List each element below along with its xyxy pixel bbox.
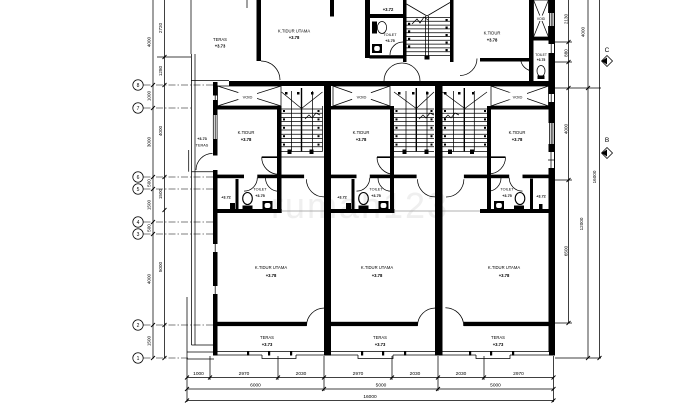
svg-text:TERAS: TERAS <box>213 37 227 42</box>
svg-text:6000: 6000 <box>250 383 261 389</box>
svg-text:4000: 4000 <box>147 36 152 47</box>
svg-text:VOID: VOID <box>243 95 253 100</box>
svg-text:+3.73: +3.73 <box>375 342 386 347</box>
svg-text:5000: 5000 <box>376 383 387 389</box>
svg-text:5: 5 <box>137 187 140 193</box>
svg-text:+3.75: +3.75 <box>385 39 395 43</box>
svg-text:TERAS: TERAS <box>373 335 387 340</box>
svg-text:+3.75: +3.75 <box>502 194 512 198</box>
svg-text:K.TIDUR UTAMA: K.TIDUR UTAMA <box>488 265 520 270</box>
svg-text:K.TIDUR UTAMA: K.TIDUR UTAMA <box>278 29 310 34</box>
svg-text:+3.78: +3.78 <box>372 273 383 278</box>
svg-text:+3.78: +3.78 <box>356 137 367 142</box>
svg-text:1500: 1500 <box>147 199 152 210</box>
svg-text:K.TIDUR: K.TIDUR <box>509 130 526 135</box>
svg-text:+3.75: +3.75 <box>371 194 381 198</box>
svg-text:VOID: VOID <box>357 95 367 100</box>
svg-text:2030: 2030 <box>456 371 467 377</box>
svg-text:+3.72: +3.72 <box>337 196 347 200</box>
svg-text:K.TIDUR: K.TIDUR <box>484 31 501 36</box>
svg-text:TOILET: TOILET <box>500 188 514 192</box>
svg-text:+3.78: +3.78 <box>289 35 300 40</box>
svg-text:16000: 16000 <box>592 170 597 183</box>
svg-text:3000: 3000 <box>147 136 152 147</box>
svg-text:TOILET: TOILET <box>535 53 547 57</box>
svg-text:12000: 12000 <box>579 217 584 230</box>
svg-text:16000: 16000 <box>363 394 377 400</box>
svg-text:+3.73: +3.73 <box>215 44 226 49</box>
svg-text:2970: 2970 <box>513 371 524 377</box>
svg-text:TERAS: TERAS <box>260 335 274 340</box>
svg-text:+3.78: +3.78 <box>266 273 277 278</box>
svg-text:TERAS: TERAS <box>491 335 505 340</box>
svg-text:+3.78: +3.78 <box>241 137 252 142</box>
svg-text:7: 7 <box>137 106 140 112</box>
svg-text:500: 500 <box>147 179 152 187</box>
svg-text:4000: 4000 <box>158 125 163 136</box>
svg-text:TOILET: TOILET <box>253 188 267 192</box>
svg-text:TOILET: TOILET <box>383 33 397 37</box>
svg-text:+3.73: +3.73 <box>262 342 273 347</box>
svg-text:2130: 2130 <box>564 13 569 24</box>
svg-text:+3.78: +3.78 <box>499 273 510 278</box>
svg-text:1500: 1500 <box>158 188 163 199</box>
svg-text:K.TIDUR UTAMA: K.TIDUR UTAMA <box>255 265 287 270</box>
svg-text:TOILET: TOILET <box>369 188 383 192</box>
svg-text:TERAS: TERAS <box>196 144 209 148</box>
svg-text:5000: 5000 <box>158 261 163 272</box>
svg-text:VOID: VOID <box>513 95 523 100</box>
svg-text:+3.73: +3.73 <box>493 342 504 347</box>
svg-text:4000: 4000 <box>564 123 569 134</box>
svg-text:B: B <box>605 137 609 144</box>
svg-text:5000: 5000 <box>490 383 501 389</box>
svg-text:+3.73: +3.73 <box>197 137 207 141</box>
svg-text:+3.78: +3.78 <box>487 38 498 43</box>
svg-text:+3.75: +3.75 <box>537 58 546 62</box>
svg-text:6500: 6500 <box>564 245 569 256</box>
svg-text:K.TIDUR UTAMA: K.TIDUR UTAMA <box>361 265 393 270</box>
svg-text:2720: 2720 <box>158 22 163 33</box>
svg-text:+3.72: +3.72 <box>221 196 231 200</box>
svg-text:+3.72: +3.72 <box>536 195 546 199</box>
svg-text:3: 3 <box>137 232 140 238</box>
svg-text:2970: 2970 <box>353 371 364 377</box>
svg-text:VOID: VOID <box>537 17 546 21</box>
svg-text:K.TIDUR: K.TIDUR <box>238 130 255 135</box>
svg-text:+3.78: +3.78 <box>512 137 523 142</box>
svg-text:500: 500 <box>147 224 152 232</box>
svg-text:1: 1 <box>137 356 140 362</box>
svg-text:+3.72: +3.72 <box>383 7 394 12</box>
svg-text:4000: 4000 <box>581 26 586 37</box>
svg-text:2030: 2030 <box>410 371 421 377</box>
svg-text:8: 8 <box>137 83 140 89</box>
svg-text:1000: 1000 <box>147 90 152 101</box>
svg-text:2030: 2030 <box>296 371 307 377</box>
svg-text:1000: 1000 <box>193 371 204 377</box>
svg-text:+3.75: +3.75 <box>255 194 265 198</box>
svg-text:4: 4 <box>137 220 140 226</box>
svg-text:K.TIDUR: K.TIDUR <box>353 130 370 135</box>
svg-text:6: 6 <box>137 175 140 181</box>
svg-text:1500: 1500 <box>147 335 152 346</box>
svg-text:4000: 4000 <box>147 273 152 284</box>
svg-text:880: 880 <box>564 49 569 57</box>
svg-text:C: C <box>605 47 610 54</box>
svg-text:1280: 1280 <box>158 65 163 76</box>
svg-text:2: 2 <box>137 323 140 329</box>
svg-text:2970: 2970 <box>239 371 250 377</box>
